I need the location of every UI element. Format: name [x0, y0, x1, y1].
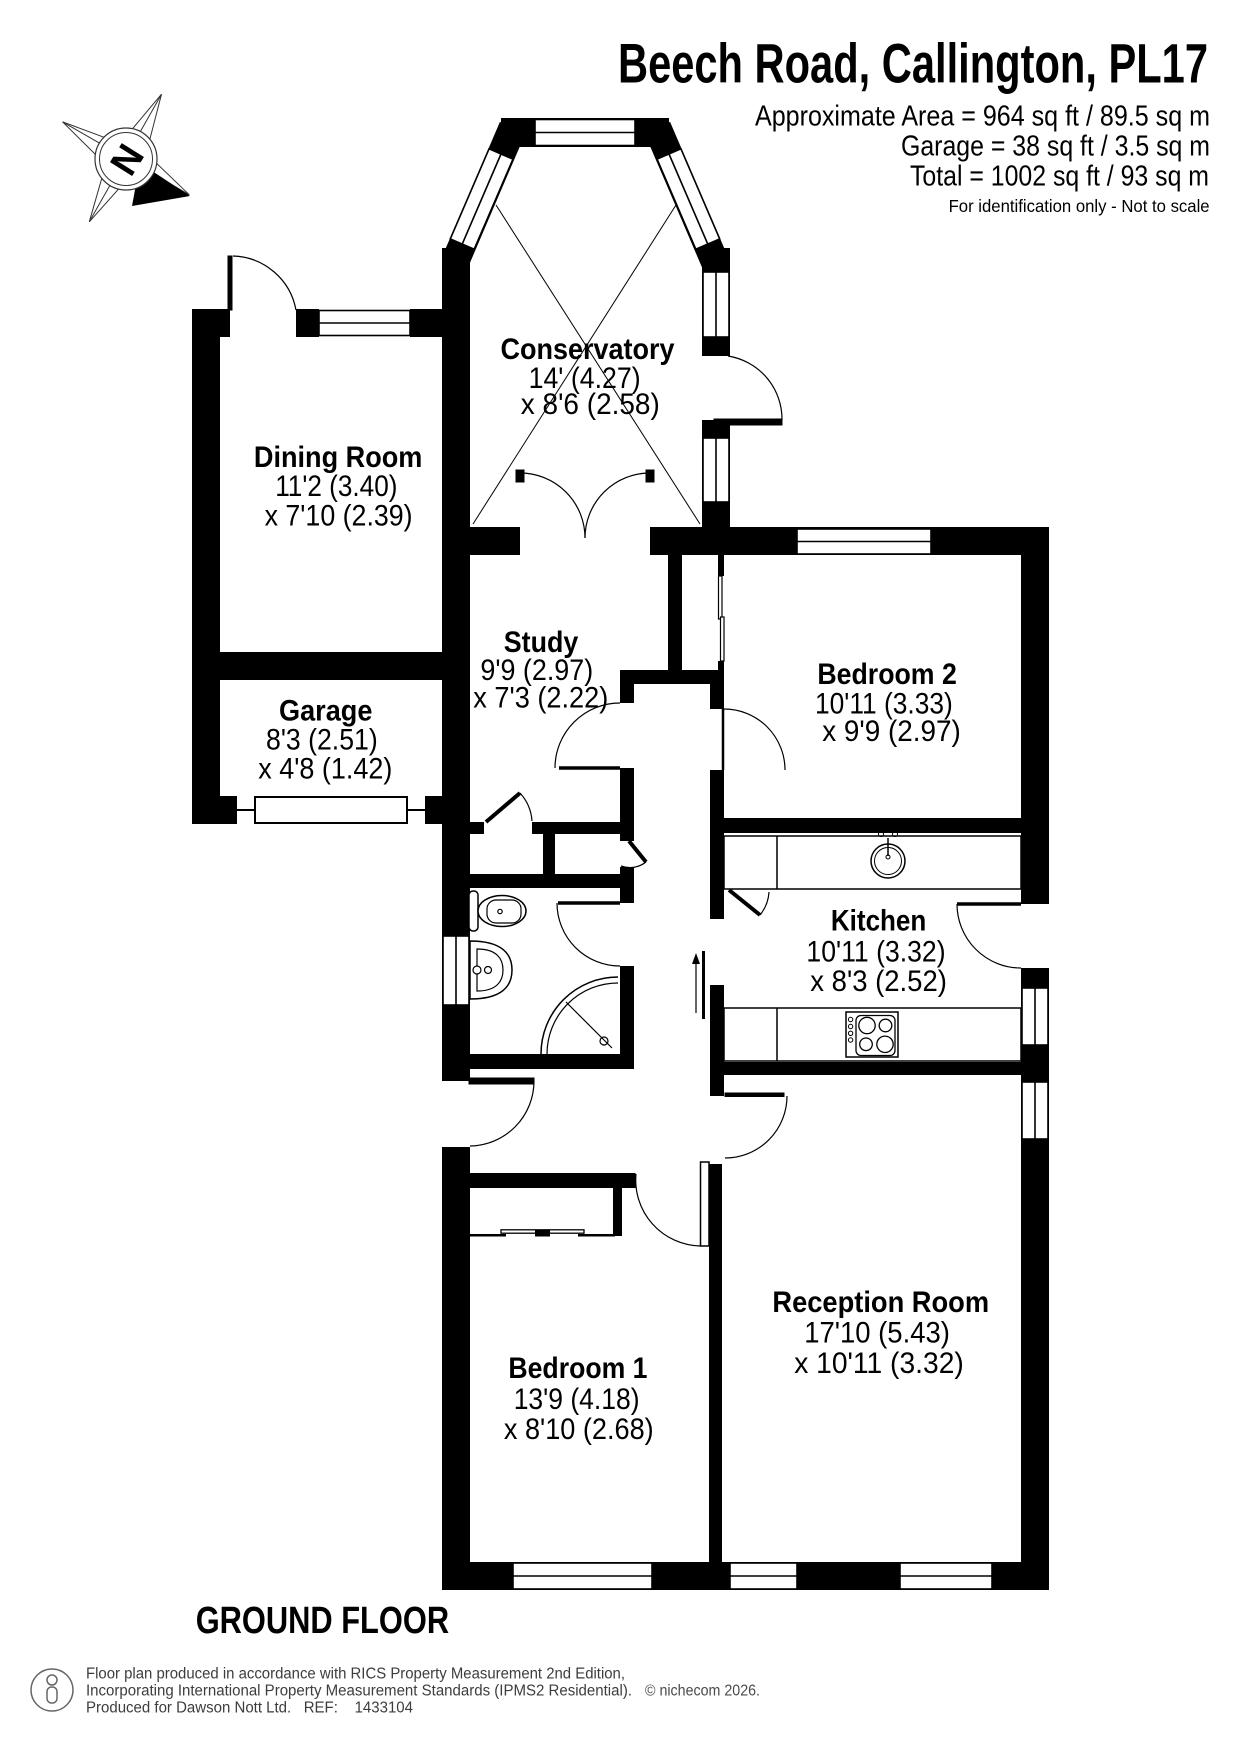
- svg-text:10'11 (3.32): 10'11 (3.32): [806, 935, 945, 968]
- svg-text:Reception Room: Reception Room: [772, 1286, 989, 1319]
- svg-text:Incorporating International Pr: Incorporating International Property Mea…: [86, 1682, 632, 1699]
- svg-text:Total = 1002 sq ft / 93 sq m: Total = 1002 sq ft / 93 sq m: [910, 161, 1209, 193]
- svg-text:Bedroom 2: Bedroom 2: [817, 658, 956, 691]
- svg-text:x 7'10 (2.39): x 7'10 (2.39): [265, 500, 413, 533]
- svg-text:x 8'10 (2.68): x 8'10 (2.68): [504, 1413, 654, 1446]
- svg-text:Approximate Area = 964 sq ft /: Approximate Area = 964 sq ft / 89.5 sq m: [755, 101, 1210, 133]
- svg-text:Beech Road, Callington, PL17: Beech Road, Callington, PL17: [618, 31, 1208, 94]
- svg-text:Garage: Garage: [279, 695, 372, 728]
- svg-text:x 8'3 (2.52): x 8'3 (2.52): [810, 965, 947, 998]
- svg-text:Produced for Dawson Nott Ltd.: Produced for Dawson Nott Ltd. REF: 14331…: [86, 1699, 413, 1716]
- svg-text:17'10 (5.43): 17'10 (5.43): [804, 1317, 950, 1350]
- svg-text:13'9 (4.18): 13'9 (4.18): [514, 1383, 640, 1416]
- svg-text:Garage = 38 sq ft / 3.5 sq m: Garage = 38 sq ft / 3.5 sq m: [901, 131, 1210, 163]
- svg-text:For identification only - Not: For identification only - Not to scale: [949, 196, 1210, 216]
- svg-text:x 7'3 (2.22): x 7'3 (2.22): [473, 682, 608, 715]
- svg-text:11'2 (3.40): 11'2 (3.40): [275, 470, 397, 503]
- svg-text:Kitchen: Kitchen: [831, 904, 926, 937]
- svg-text:© nichecom 2026.: © nichecom 2026.: [645, 1682, 760, 1699]
- svg-text:Bedroom 1: Bedroom 1: [508, 1352, 647, 1385]
- svg-text:x 10'11 (3.32): x 10'11 (3.32): [794, 1347, 964, 1380]
- svg-text:Floor plan produced in accorda: Floor plan produced in accordance with R…: [86, 1665, 625, 1682]
- svg-text:GROUND FLOOR: GROUND FLOOR: [196, 1600, 449, 1642]
- svg-text:x 4'8 (1.42): x 4'8 (1.42): [258, 753, 392, 786]
- svg-text:x 8'6 (2.58): x 8'6 (2.58): [521, 388, 660, 421]
- svg-text:x 9'9 (2.97): x 9'9 (2.97): [822, 715, 961, 748]
